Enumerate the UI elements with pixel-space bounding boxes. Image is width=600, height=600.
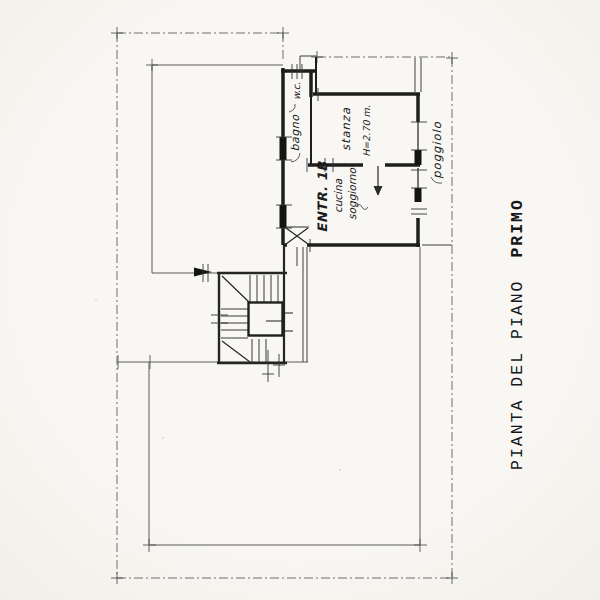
cucina-east-window — [415, 188, 422, 202]
wc-leader — [289, 104, 295, 112]
entrance-door — [285, 227, 310, 266]
stairwell — [217, 245, 287, 363]
svg-text:PIANTA DEL PIANO PRIMO: PIANTA DEL PIANO PRIMO — [508, 198, 527, 470]
label-poggiolo: poggiolo — [430, 121, 444, 178]
scan-specks — [95, 119, 520, 471]
label-stanza: stanza — [339, 107, 353, 151]
bagno-leader — [291, 153, 300, 162]
mid-flight-treads — [221, 309, 248, 338]
elevator-shaft — [249, 303, 294, 336]
plan-title-prefix: PIANTA DEL PIANO — [508, 279, 527, 469]
label-soggiorno: soggiorno — [346, 168, 359, 220]
lower-flight-treads — [252, 339, 266, 362]
terrace-corner-ticks — [118, 59, 427, 552]
floor-plan-canvas: w.c. bagno stanza H=2.70 m. ENTR. 1B cuc… — [0, 0, 600, 600]
stanza-window — [415, 150, 422, 165]
stair-break-line-lower — [222, 341, 250, 362]
label-bagno: bagno — [289, 114, 302, 152]
scanned-floor-plan-sheet: w.c. bagno stanza H=2.70 m. ENTR. 1B cuc… — [0, 0, 600, 600]
upper-flight-treads — [250, 275, 278, 302]
label-wc: w.c. — [291, 82, 302, 100]
plan-title: PIANTA DEL PIANO PRIMO — [508, 198, 527, 470]
stair-break-line-upper — [222, 276, 250, 303]
bagno-window — [280, 137, 287, 160]
stanza-door — [374, 166, 382, 195]
plan-title-emphasis: PRIMO — [508, 198, 527, 258]
cucina-west-window — [280, 205, 287, 228]
label-entrance-unit: ENTR. 1B — [315, 161, 330, 233]
terrace-lines — [117, 65, 420, 545]
label-stanza-height: H=2.70 m. — [361, 105, 372, 157]
label-cucina: cucina — [332, 178, 344, 213]
